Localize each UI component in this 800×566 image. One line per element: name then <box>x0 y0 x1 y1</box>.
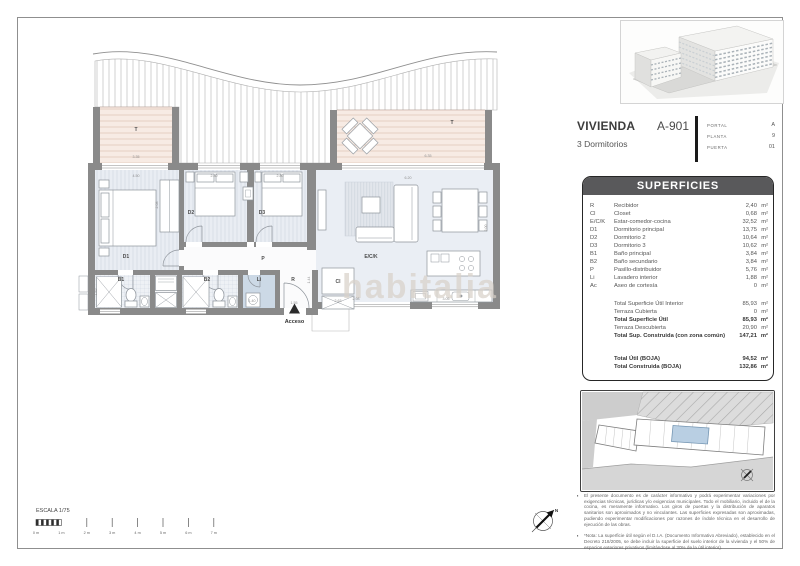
dimension-label: 3.05 <box>443 297 450 301</box>
tv-unit-icon <box>318 190 326 230</box>
dimension-label: 6.35 <box>425 154 432 158</box>
scale-tick-label: 3 m <box>109 531 115 535</box>
unit-card: VIVIENDA A-901 3 Dormitorios PORTALAPLAN… <box>577 110 775 168</box>
superficies-row: Total Superficie Útil85,93m² <box>590 316 768 324</box>
unit-code: A-901 <box>657 119 689 133</box>
sink-icon-b1 <box>140 296 149 307</box>
room-label-terrace-left: T <box>134 127 137 133</box>
room-label-d2: D2 <box>188 210 195 216</box>
sink-icon-b2 <box>228 296 237 307</box>
scale-tick-label: 7 m <box>211 531 217 535</box>
dimension-label: 2.08 <box>155 202 159 209</box>
wardrobe-icon-d1 <box>160 180 179 232</box>
room-label-b1: B1 <box>118 277 125 283</box>
superficies-row: RRecibidor2,40m² <box>590 202 768 210</box>
scale-bar: 0 m1 m2 m3 m4 m5 m6 m7 m <box>33 518 217 535</box>
notes: ▪El presente documento es de carácter in… <box>577 493 775 556</box>
superficies-row: E/C/KEstar-comedor-cocina32,52m² <box>590 218 768 226</box>
scale-tick-label: 0 m <box>33 531 39 535</box>
room-label-d3: D3 <box>259 210 266 216</box>
superficies-row: D1Dormitorio principal13,75m² <box>590 226 768 234</box>
superficies-row: Total Construida (BOJA)132,86m² <box>590 363 768 371</box>
dimension-label: 2.00 <box>484 225 488 232</box>
superficies-row: AcAseo de cortesía0m² <box>590 282 768 290</box>
dimension-label: 6.20 <box>405 176 412 180</box>
unit-subtitle: 3 Dormitorios <box>577 139 689 149</box>
room-label-li: Li <box>257 277 262 283</box>
superficies-row: PPasillo-distribuidor5,76m² <box>590 266 768 274</box>
shaft-icon <box>243 187 253 200</box>
note-item: ▪*Nota: La superficie útil según el D.I.… <box>577 533 775 550</box>
north-compass-icon: N <box>532 508 559 532</box>
superficies-row: Total Útil (BOJA)94,52m² <box>590 355 768 363</box>
highlighted-unit <box>672 426 710 445</box>
dimension-label: 1.55 <box>291 301 298 305</box>
room-label-terrace-right: T <box>450 120 453 126</box>
room-label-recibidor: R <box>291 277 295 283</box>
site-plan <box>580 390 775 492</box>
building-render-image <box>621 21 783 103</box>
dimension-label: 2.80 <box>211 174 218 178</box>
unit-card-left: VIVIENDA A-901 3 Dormitorios <box>577 110 689 168</box>
dimension-label: 3.35 <box>133 155 140 159</box>
north-label: N <box>555 508 559 513</box>
unit-details: PORTALAPLANTA9PUERTA01 <box>707 120 775 168</box>
superficies-row: Total Superficie Útil Interior85,93m² <box>590 300 768 308</box>
dimension-label: 1.82 <box>94 289 98 296</box>
unit-detail-row: PORTALA <box>707 120 775 131</box>
scale-title: ESCALA 1/75 <box>36 508 70 514</box>
superficies-row: B2Baño secundario3,84m² <box>590 258 768 266</box>
room-label-eck: E/C/K <box>364 254 378 260</box>
toilet-icon-b1 <box>125 289 137 308</box>
note-item: ▪El presente documento es de carácter in… <box>577 493 775 527</box>
building-render <box>620 20 784 104</box>
access-label: Acceso <box>285 319 305 325</box>
dimension-label: 4.50 <box>133 174 140 178</box>
dimension-label: 1.44 <box>307 277 311 284</box>
divider <box>695 116 698 162</box>
terrace-right <box>335 110 485 163</box>
dining-table-icon <box>433 189 487 232</box>
exterior-ledges <box>79 276 88 310</box>
unit-detail-row: PUERTA01 <box>707 142 775 153</box>
dimension-label: 2.63 <box>335 299 342 303</box>
dimension-label: 2.98 <box>353 297 360 301</box>
toilet-icon-b2 <box>213 289 225 308</box>
scale-tick-label: 5 m <box>160 531 166 535</box>
superficies-row: Terraza Cubierta0m² <box>590 308 768 316</box>
watermark: habitalia <box>342 268 498 306</box>
scale-tick-label: 4 m <box>134 531 140 535</box>
scale-tick-label: 1 m <box>58 531 64 535</box>
room-label-d1: D1 <box>123 254 130 260</box>
superficies-row: LiLavadero interior1,88m² <box>590 274 768 282</box>
dimension-label: 1.40 <box>249 299 256 303</box>
superficies-table: RRecibidor2,40m²ClCloset0,68m²E/C/KEstar… <box>583 195 773 371</box>
room-label-b2: B2 <box>204 277 211 283</box>
superficies-row: B1Baño principal3,84m² <box>590 250 768 258</box>
room-label-closet: Cl <box>336 279 342 285</box>
superficies-row: ClCloset0,68m² <box>590 210 768 218</box>
scale-tick-label: 2 m <box>84 531 90 535</box>
superficies-row: Terraza Descubierta20,90m² <box>590 324 768 332</box>
superficies-panel: SUPERFICIES RRecibidor2,40m²ClCloset0,68… <box>582 176 774 381</box>
superficies-header: SUPERFICIES <box>583 177 773 195</box>
superficies-row: D2Dormitorio 210,64m² <box>590 234 768 242</box>
dimension-label: 2.80 <box>277 174 284 178</box>
superficies-row: Total Sup. Construida (con zona común)14… <box>590 332 768 340</box>
bed-icon-d1 <box>99 180 156 256</box>
unit-detail-row: PLANTA9 <box>707 131 775 142</box>
superficies-row: D3Dormitorio 310,62m² <box>590 242 768 250</box>
scale-tick-label: 6 m <box>185 531 191 535</box>
coffee-table-icon <box>362 197 380 213</box>
unit-title: VIVIENDA <box>577 119 635 133</box>
site-plan-image <box>581 391 774 491</box>
